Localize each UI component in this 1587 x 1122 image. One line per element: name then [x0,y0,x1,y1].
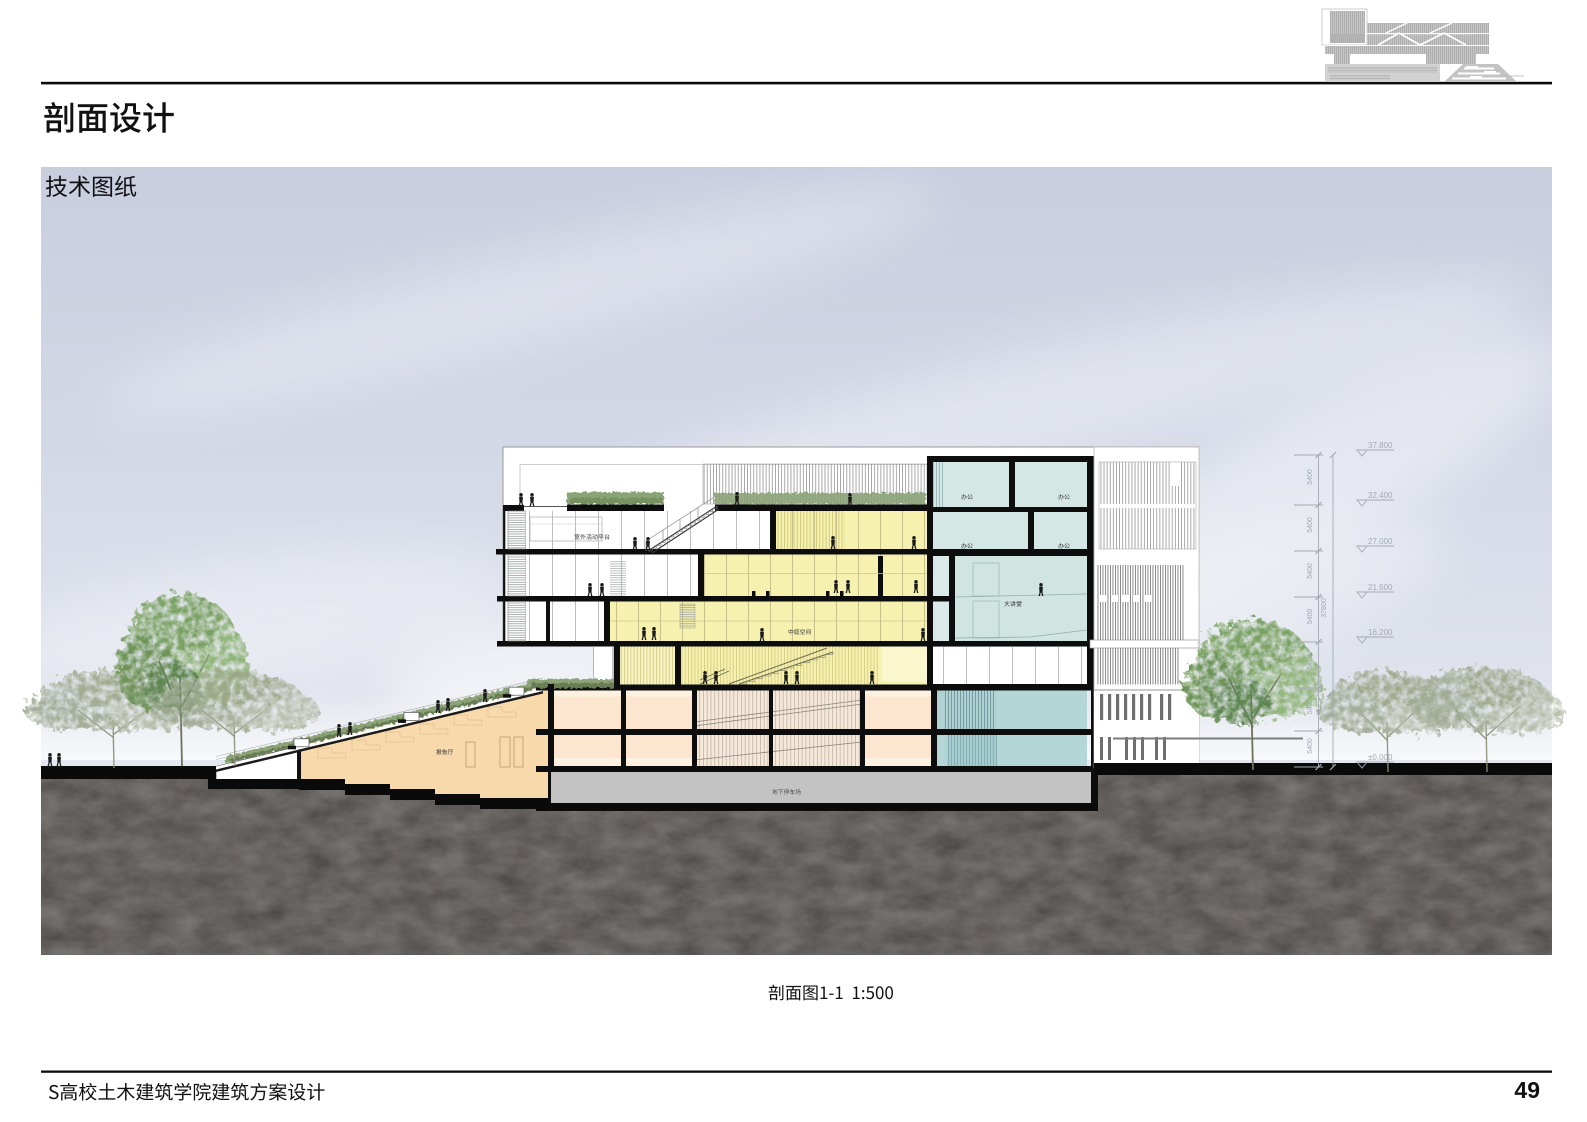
svg-text:32.400: 32.400 [1368,491,1393,500]
svg-text:5400: 5400 [1307,609,1314,625]
svg-text:49: 49 [1514,1077,1540,1103]
svg-text:5400: 5400 [1307,563,1314,579]
svg-text:5400: 5400 [1307,738,1314,754]
svg-text:5400: 5400 [1307,469,1314,485]
svg-text:±0.000: ±0.000 [1368,753,1393,762]
svg-text:21.600: 21.600 [1368,583,1393,592]
svg-text:37800: 37800 [1321,598,1328,618]
svg-text:16.200: 16.200 [1368,628,1393,637]
svg-text:5400: 5400 [1307,517,1314,533]
svg-text:5400: 5400 [1307,699,1314,715]
svg-text:37.800: 37.800 [1368,441,1393,450]
svg-text:27.000: 27.000 [1368,537,1393,546]
svg-text:5400: 5400 [1307,654,1314,670]
